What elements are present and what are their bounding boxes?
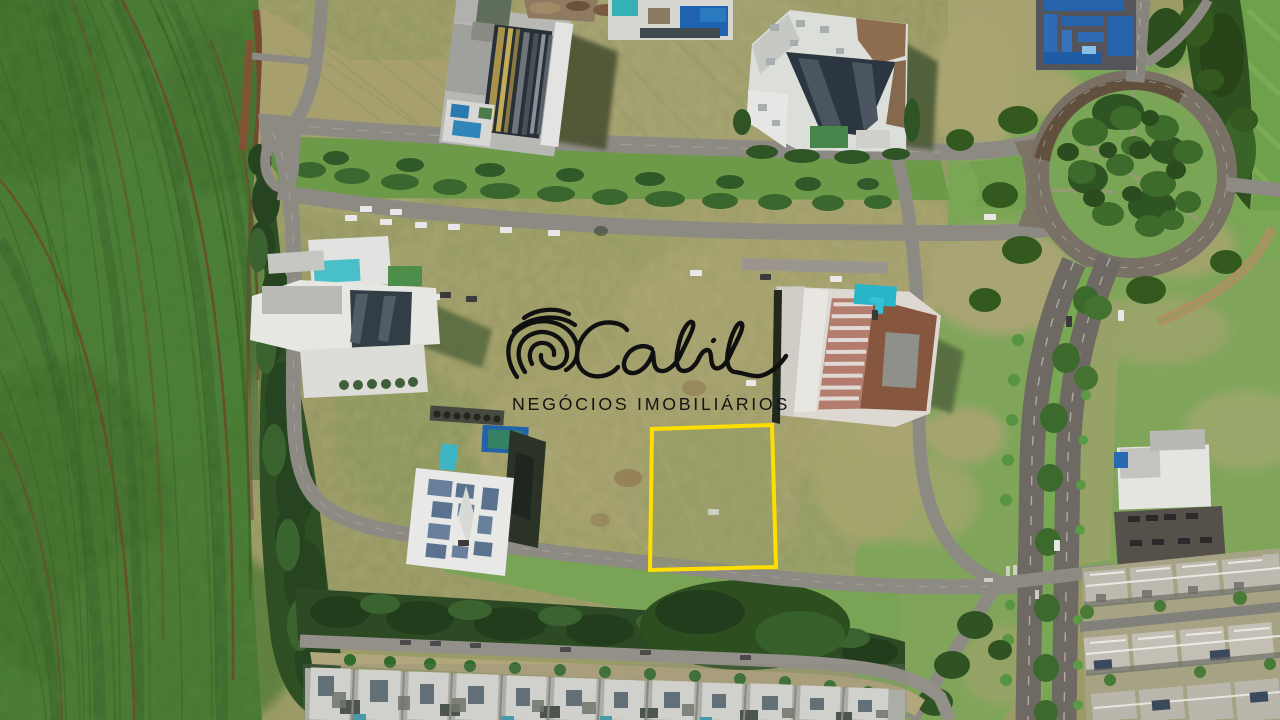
svg-text:NEGÓCIOS IMOBILIÁRIOS: NEGÓCIOS IMOBILIÁRIOS xyxy=(512,393,790,414)
